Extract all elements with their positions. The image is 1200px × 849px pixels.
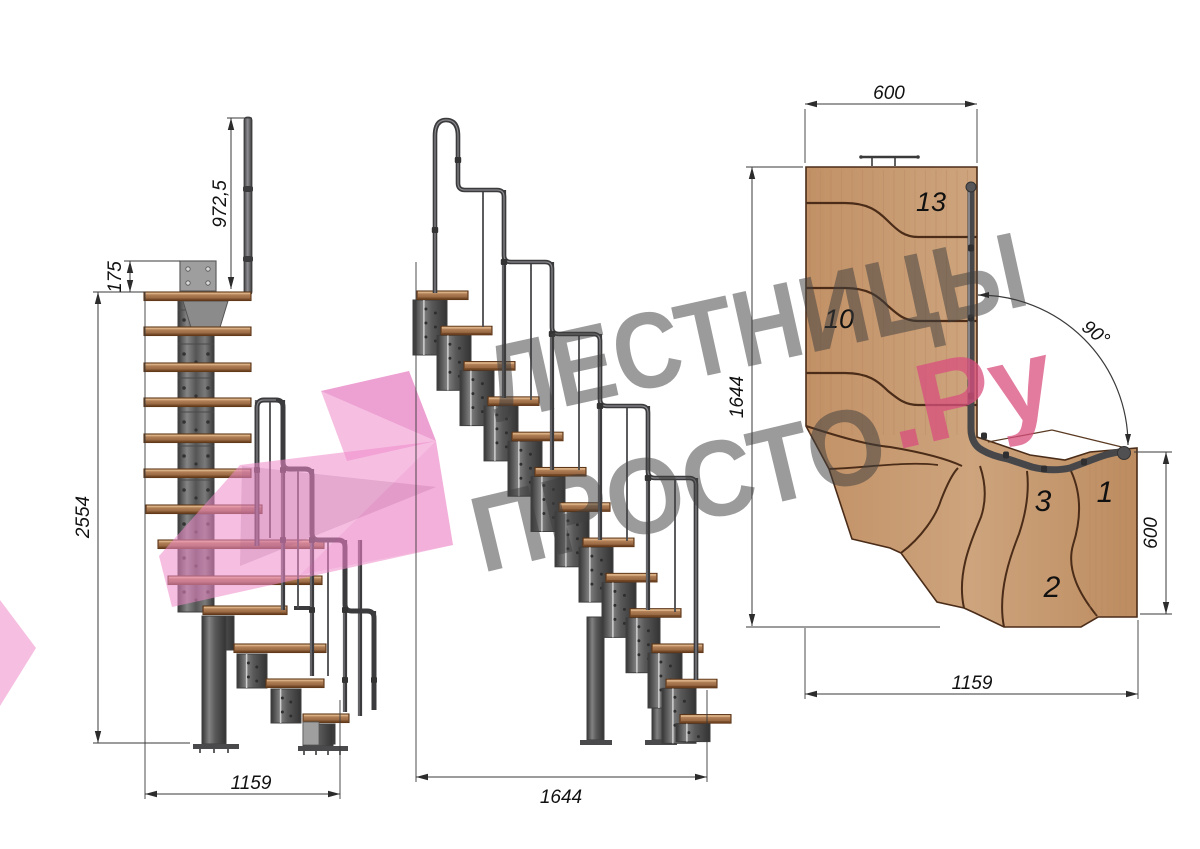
svg-text:1644: 1644: [727, 376, 748, 418]
svg-text:3: 3: [1035, 485, 1052, 518]
svg-text:2554: 2554: [73, 496, 94, 539]
svg-text:90°: 90°: [1078, 317, 1114, 351]
svg-text:1159: 1159: [231, 773, 272, 794]
svg-text:600: 600: [873, 83, 905, 104]
svg-text:972,5: 972,5: [210, 180, 231, 228]
svg-text:1159: 1159: [952, 673, 993, 694]
svg-text:13: 13: [916, 187, 946, 217]
svg-text:2: 2: [1043, 571, 1061, 604]
svg-text:600: 600: [1141, 517, 1162, 549]
svg-text:1: 1: [1097, 476, 1114, 509]
svg-text:175: 175: [105, 261, 126, 293]
svg-text:1644: 1644: [540, 787, 582, 808]
